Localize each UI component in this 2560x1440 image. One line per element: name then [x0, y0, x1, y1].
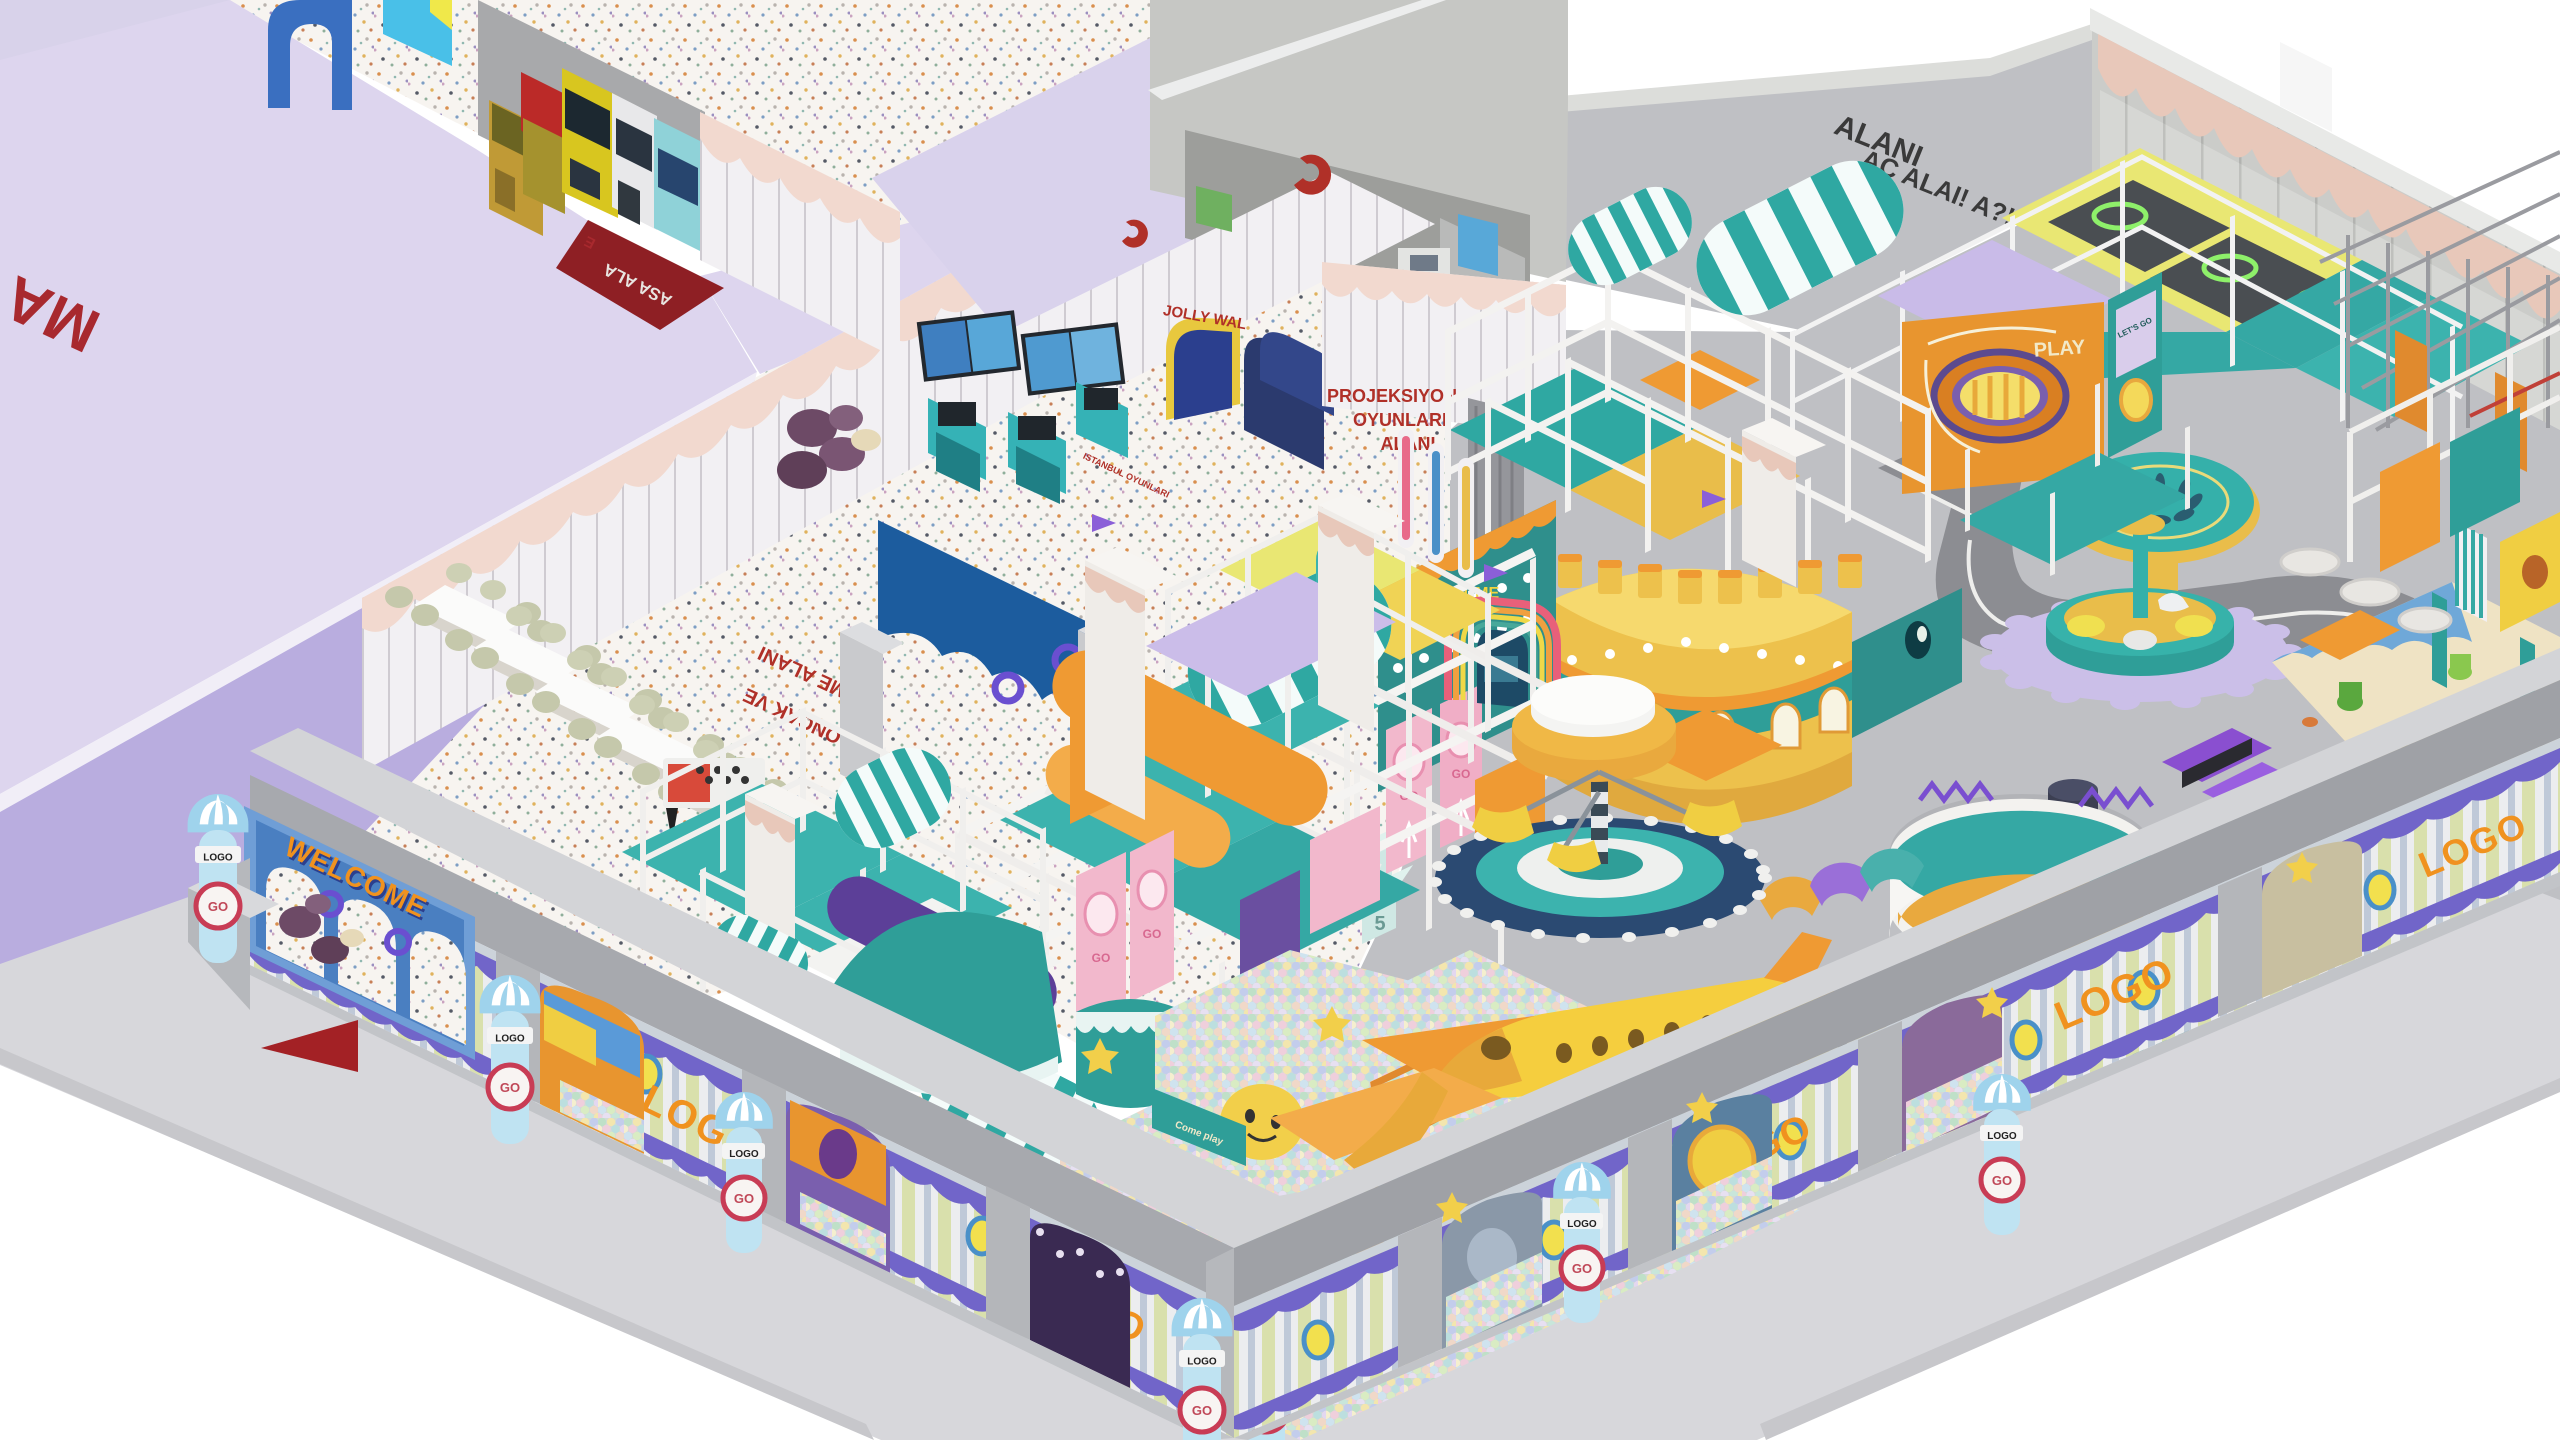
svg-text:LOGO: LOGO	[1987, 1131, 2017, 1142]
svg-text:GO: GO	[500, 1080, 520, 1095]
svg-text:GO: GO	[1092, 951, 1111, 965]
svg-text:GO: GO	[1572, 1261, 1592, 1276]
svg-text:LOGO: LOGO	[203, 852, 233, 863]
svg-text:PLAY: PLAY	[2033, 336, 2087, 362]
svg-text:LOGO: LOGO	[1187, 1356, 1217, 1367]
svg-text:GO: GO	[1143, 927, 1162, 941]
svg-text:GO: GO	[1992, 1173, 2012, 1188]
svg-text:GO: GO	[208, 899, 228, 914]
svg-text:PROJEKSIYON: PROJEKSIYON	[1327, 386, 1457, 406]
svg-text:OYUNLARI: OYUNLARI	[1353, 410, 1447, 430]
svg-text:5: 5	[1374, 913, 1385, 935]
svg-text:LOGO: LOGO	[729, 1149, 759, 1160]
svg-text:GO: GO	[734, 1191, 754, 1206]
svg-text:GO: GO	[1452, 767, 1471, 781]
svg-text:LOGO: LOGO	[1567, 1219, 1597, 1230]
svg-text:GO: GO	[1192, 1403, 1212, 1418]
svg-text:LOGO: LOGO	[495, 1033, 525, 1044]
